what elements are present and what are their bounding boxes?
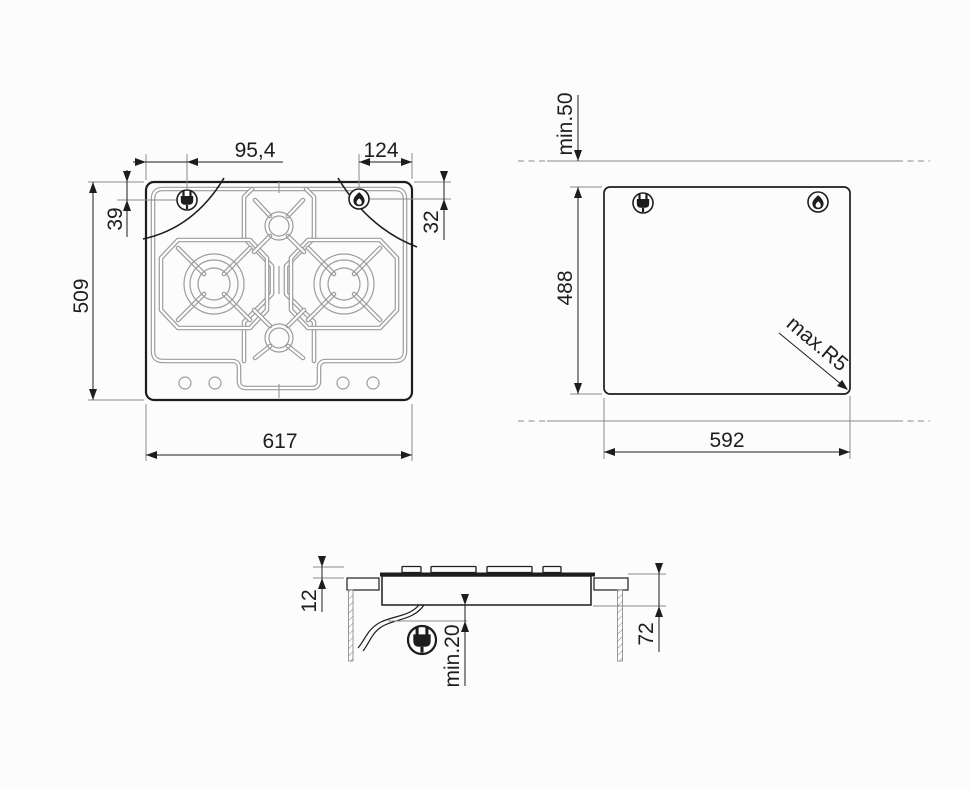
- burner-caps-profile: [402, 567, 561, 573]
- worktop-cutout-view: min.50 488 592 max.R5: [518, 92, 930, 459]
- dim-cutout-width: 592: [709, 429, 744, 452]
- knob: [367, 377, 379, 389]
- dim-rear-clearance: min.50: [554, 92, 577, 155]
- cabinet-wall-left: [349, 590, 354, 661]
- burner-bottom: [265, 324, 293, 352]
- hob-body-section: [382, 576, 591, 605]
- side-section-view: 12 72 min.20: [298, 556, 666, 688]
- dim-plug-offset-y: 39: [104, 207, 127, 230]
- dim-overall-width: 617: [262, 430, 297, 453]
- cutout-outline: [604, 187, 850, 394]
- worktop-section-left: [347, 578, 379, 590]
- knob: [179, 377, 191, 389]
- dim-height-above-worktop: 12: [298, 589, 321, 612]
- plug-icon: [177, 190, 197, 210]
- worktop-section-right: [594, 578, 628, 590]
- cabinet-wall-right: [618, 590, 623, 661]
- flame-icon: [808, 192, 828, 212]
- flame-icon: [349, 189, 369, 209]
- cutout-dimensions: min.50 488 592 max.R5: [554, 92, 852, 459]
- dim-plug-offset-x: 95,4: [235, 139, 276, 162]
- dim-under-clearance: min.20: [441, 624, 464, 687]
- installation-diagram: 95,4 124 39 32 509 617: [0, 0, 970, 790]
- dim-flame-offset-y: 32: [420, 210, 443, 233]
- knob: [337, 377, 349, 389]
- burner-left: [184, 254, 244, 314]
- dim-cutout-depth: 488: [554, 270, 577, 305]
- plug-icon: [408, 626, 436, 654]
- knob: [209, 377, 221, 389]
- hob-top-view: 95,4 124 39 32 509 617: [70, 139, 451, 461]
- dim-overall-depth: 509: [70, 278, 93, 313]
- dim-flame-offset-x: 124: [363, 139, 398, 162]
- burner-right: [314, 254, 374, 314]
- plug-icon: [633, 193, 653, 213]
- burner-top: [265, 212, 293, 240]
- dim-built-in-depth: 72: [635, 622, 658, 645]
